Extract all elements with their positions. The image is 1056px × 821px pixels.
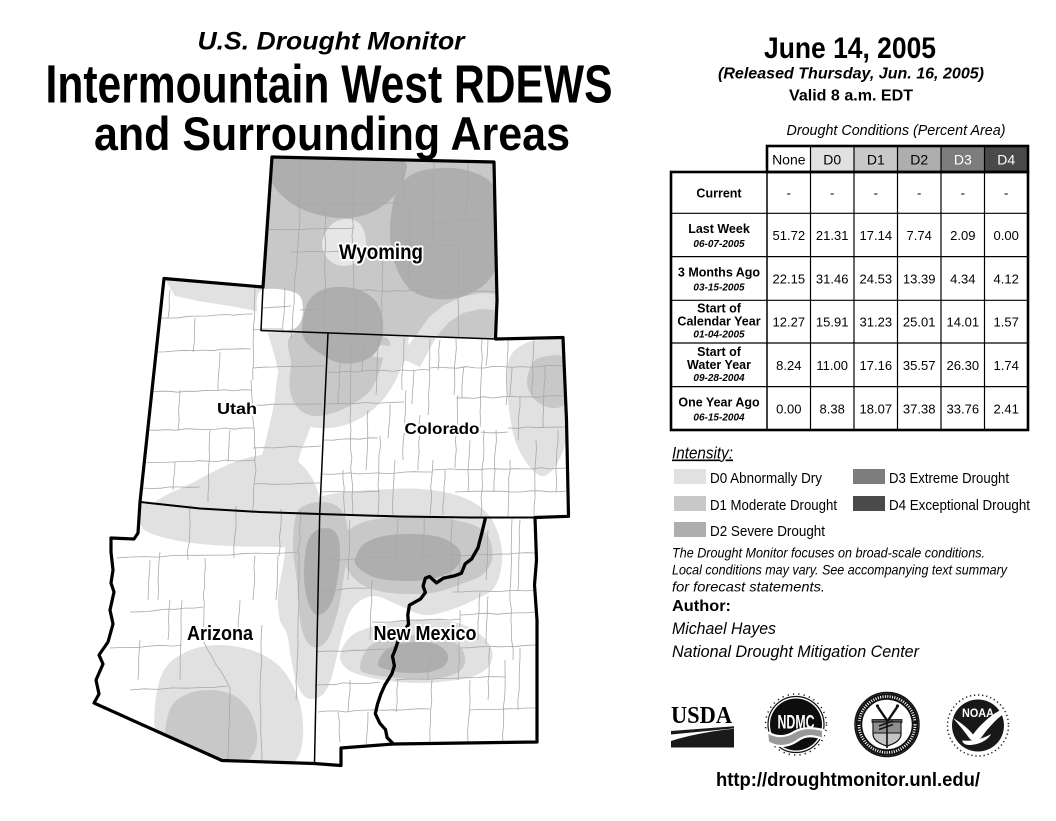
svg-text:USDA: USDA: [671, 703, 733, 729]
svg-text:(Released Thursday, Jun. 16, 2: (Released Thursday, Jun. 16, 2005): [718, 66, 984, 83]
svg-text:11.00: 11.00: [816, 358, 848, 373]
svg-text:8.38: 8.38: [820, 401, 845, 416]
svg-text:Start of: Start of: [697, 345, 742, 359]
svg-text:and Surrounding Areas: and Surrounding Areas: [94, 107, 570, 160]
svg-text:2.41: 2.41: [994, 401, 1019, 416]
svg-text:Utah: Utah: [217, 401, 257, 418]
svg-text:Valid 8 a.m. EDT: Valid 8 a.m. EDT: [789, 88, 913, 105]
svg-text:D1: D1: [867, 152, 885, 168]
svg-text:06-07-2005: 06-07-2005: [693, 239, 745, 250]
svg-text:26.30: 26.30: [947, 358, 980, 373]
svg-text:-: -: [874, 186, 878, 201]
svg-text:Author:: Author:: [672, 598, 731, 615]
svg-text:-: -: [830, 186, 834, 201]
svg-text:7.74: 7.74: [907, 228, 932, 243]
svg-text:3 Months Ago: 3 Months Ago: [678, 266, 761, 280]
svg-text:1.57: 1.57: [994, 315, 1019, 330]
svg-text:0.00: 0.00: [776, 401, 801, 416]
svg-text:35.57: 35.57: [903, 358, 936, 373]
svg-text:One Year Ago: One Year Ago: [678, 395, 760, 409]
svg-text:NOAA: NOAA: [962, 706, 994, 720]
svg-text:2.09: 2.09: [950, 228, 975, 243]
svg-text:21.31: 21.31: [816, 228, 849, 243]
svg-text:D2: D2: [910, 152, 928, 168]
svg-text:0.00: 0.00: [994, 228, 1019, 243]
svg-text:Michael Hayes: Michael Hayes: [672, 619, 776, 638]
svg-text:Intermountain West RDEWS: Intermountain West RDEWS: [46, 55, 613, 115]
svg-text:Wyoming: Wyoming: [339, 240, 423, 264]
svg-text:Intensity:: Intensity:: [672, 445, 733, 463]
svg-text:Calendar Year: Calendar Year: [677, 315, 760, 329]
svg-text:4.34: 4.34: [950, 272, 975, 287]
svg-text:14.01: 14.01: [947, 315, 980, 330]
svg-text:Last Week: Last Week: [688, 222, 750, 236]
svg-text:U.S. Drought Monitor: U.S. Drought Monitor: [198, 28, 466, 56]
svg-text:24.53: 24.53: [860, 272, 893, 287]
svg-text:Current: Current: [696, 187, 742, 201]
svg-text:8.24: 8.24: [776, 358, 801, 373]
svg-text:Local conditions may vary. See: Local conditions may vary. See accompany…: [672, 562, 1008, 578]
svg-text:-: -: [961, 186, 965, 201]
svg-text:D4: D4: [997, 152, 1015, 168]
svg-text:33.76: 33.76: [947, 401, 980, 416]
svg-text:D0: D0: [823, 152, 841, 168]
svg-text:New Mexico: New Mexico: [374, 623, 477, 645]
svg-text:31.23: 31.23: [860, 315, 893, 330]
svg-text:for forecast statements.: for forecast statements.: [672, 579, 825, 595]
svg-text:D1 Moderate Drought: D1 Moderate Drought: [710, 497, 838, 514]
svg-text:D2 Severe Drought: D2 Severe Drought: [710, 523, 826, 540]
svg-text:15.91: 15.91: [816, 315, 849, 330]
svg-text:None: None: [772, 152, 806, 168]
svg-text:37.38: 37.38: [903, 401, 936, 416]
svg-text:13.39: 13.39: [903, 272, 936, 287]
svg-text:06-15-2004: 06-15-2004: [693, 412, 745, 423]
svg-text:D0 Abnormally Dry: D0 Abnormally Dry: [710, 470, 822, 487]
svg-text:31.46: 31.46: [816, 272, 849, 287]
svg-text:18.07: 18.07: [860, 401, 893, 416]
svg-text:12.27: 12.27: [773, 315, 806, 330]
svg-text:Colorado: Colorado: [405, 421, 480, 438]
svg-text:D3 Extreme Drought: D3 Extreme Drought: [889, 470, 1010, 487]
svg-text:-: -: [1004, 186, 1008, 201]
svg-text:http://droughtmonitor.unl.edu/: http://droughtmonitor.unl.edu/: [716, 770, 981, 791]
svg-text:Start of: Start of: [697, 302, 742, 316]
svg-text:17.16: 17.16: [860, 358, 893, 373]
svg-text:25.01: 25.01: [903, 315, 936, 330]
svg-text:Drought Conditions (Percent Ar: Drought Conditions (Percent Area): [787, 122, 1006, 139]
svg-text:22.15: 22.15: [773, 272, 806, 287]
svg-text:-: -: [917, 186, 921, 201]
svg-text:National Drought Mitigation Ce: National Drought Mitigation Center: [672, 643, 920, 661]
svg-text:June 14, 2005: June 14, 2005: [764, 32, 936, 65]
svg-text:-: -: [787, 186, 791, 201]
svg-text:D4 Exceptional Drought: D4 Exceptional Drought: [889, 497, 1031, 514]
svg-text:03-15-2005: 03-15-2005: [693, 283, 745, 294]
svg-text:D3: D3: [954, 152, 972, 168]
svg-text:The Drought Monitor focuses on: The Drought Monitor focuses on broad-sca…: [672, 545, 985, 561]
svg-text:17.14: 17.14: [860, 228, 893, 243]
svg-text:4.12: 4.12: [994, 272, 1019, 287]
svg-text:01-04-2005: 01-04-2005: [693, 330, 745, 341]
svg-text:51.72: 51.72: [773, 228, 806, 243]
svg-text:Arizona: Arizona: [187, 623, 254, 645]
svg-text:1.74: 1.74: [994, 358, 1019, 373]
svg-text:09-28-2004: 09-28-2004: [693, 373, 745, 384]
svg-text:Water Year: Water Year: [687, 358, 751, 372]
